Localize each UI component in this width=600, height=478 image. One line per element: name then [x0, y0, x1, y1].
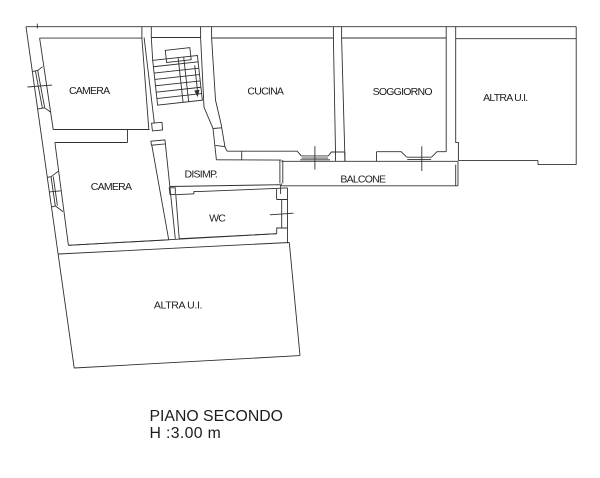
- svg-text:BALCONE: BALCONE: [340, 173, 386, 185]
- svg-text:WC: WC: [209, 213, 226, 225]
- svg-text:CAMERA: CAMERA: [91, 181, 132, 193]
- svg-text:ALTRA U.I.: ALTRA U.I.: [483, 92, 527, 104]
- svg-text:PIANO SECONDO: PIANO SECONDO: [150, 408, 283, 425]
- svg-text:CUCINA: CUCINA: [247, 86, 283, 98]
- svg-text:DISIMP.: DISIMP.: [185, 168, 217, 180]
- svg-text:SOGGIORNO: SOGGIORNO: [373, 86, 433, 98]
- svg-text:ALTRA U.I.: ALTRA U.I.: [154, 299, 202, 311]
- svg-text:H :3.00 m: H :3.00 m: [150, 425, 222, 442]
- svg-text:CAMERA: CAMERA: [69, 85, 110, 97]
